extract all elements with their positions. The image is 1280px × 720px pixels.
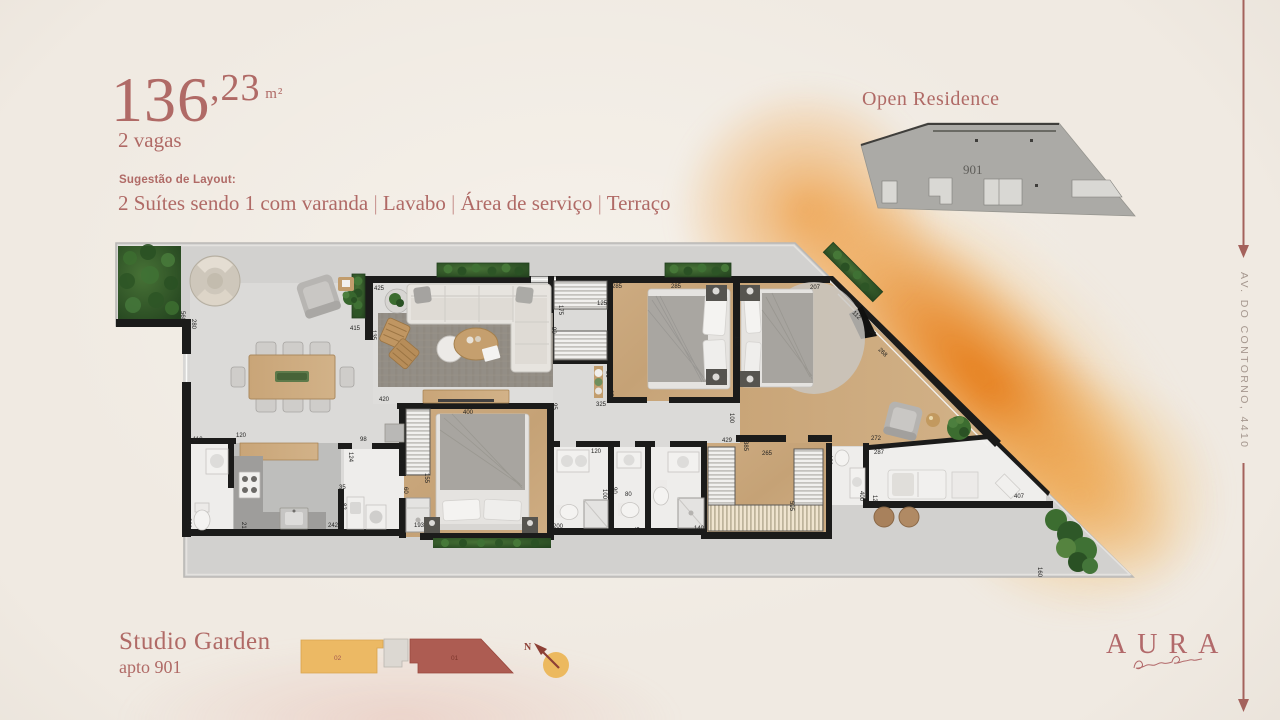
svg-text:135: 135 — [370, 330, 376, 341]
svg-text:120: 120 — [871, 495, 877, 506]
svg-text:120: 120 — [236, 433, 247, 439]
svg-text:420: 420 — [379, 397, 390, 403]
svg-text:110: 110 — [193, 437, 203, 443]
svg-text:35: 35 — [339, 485, 346, 491]
svg-text:130: 130 — [826, 455, 832, 466]
svg-text:595: 595 — [788, 501, 794, 512]
svg-text:N: N — [524, 642, 532, 653]
svg-text:287: 287 — [874, 450, 885, 456]
svg-text:425: 425 — [374, 286, 385, 292]
svg-text:175: 175 — [557, 305, 563, 316]
svg-text:400: 400 — [463, 410, 474, 416]
svg-text:207: 207 — [810, 285, 821, 291]
svg-text:242: 242 — [328, 523, 339, 529]
svg-text:193: 193 — [414, 523, 425, 529]
svg-text:90: 90 — [550, 327, 556, 334]
svg-text:200: 200 — [185, 518, 191, 529]
svg-text:140: 140 — [694, 526, 705, 532]
svg-text:82: 82 — [340, 503, 346, 510]
svg-text:125: 125 — [597, 301, 608, 307]
svg-text:415: 415 — [350, 326, 361, 332]
svg-text:01: 01 — [451, 655, 459, 662]
svg-text:100: 100 — [601, 489, 607, 500]
svg-text:95: 95 — [551, 403, 557, 410]
svg-text:160: 160 — [1036, 567, 1042, 578]
svg-text:100: 100 — [728, 413, 734, 424]
svg-text:120: 120 — [591, 449, 602, 455]
svg-text:276: 276 — [607, 390, 613, 401]
svg-text:285: 285 — [671, 284, 682, 290]
svg-text:135: 135 — [733, 336, 739, 347]
svg-text:200: 200 — [553, 524, 564, 530]
svg-text:90: 90 — [604, 371, 610, 378]
svg-text:71: 71 — [397, 458, 403, 465]
svg-text:98: 98 — [360, 437, 367, 443]
svg-text:325: 325 — [596, 402, 607, 408]
svg-text:155: 155 — [423, 473, 429, 484]
svg-text:124: 124 — [347, 452, 353, 463]
svg-text:95: 95 — [633, 527, 639, 534]
svg-text:60: 60 — [402, 487, 408, 494]
svg-text:400: 400 — [858, 491, 864, 502]
svg-text:560: 560 — [179, 311, 185, 322]
svg-text:407: 407 — [1014, 494, 1025, 500]
svg-text:265: 265 — [762, 451, 773, 457]
svg-text:385: 385 — [742, 441, 748, 452]
svg-text:280: 280 — [190, 319, 196, 330]
svg-text:213: 213 — [240, 522, 246, 533]
svg-text:80: 80 — [625, 492, 632, 498]
svg-text:901: 901 — [963, 162, 983, 177]
svg-text:02: 02 — [334, 655, 342, 662]
svg-text:429: 429 — [722, 438, 733, 444]
svg-text:272: 272 — [871, 436, 882, 442]
svg-text:90: 90 — [611, 487, 617, 494]
svg-text:205: 205 — [810, 437, 821, 443]
svg-text:285: 285 — [612, 284, 623, 290]
